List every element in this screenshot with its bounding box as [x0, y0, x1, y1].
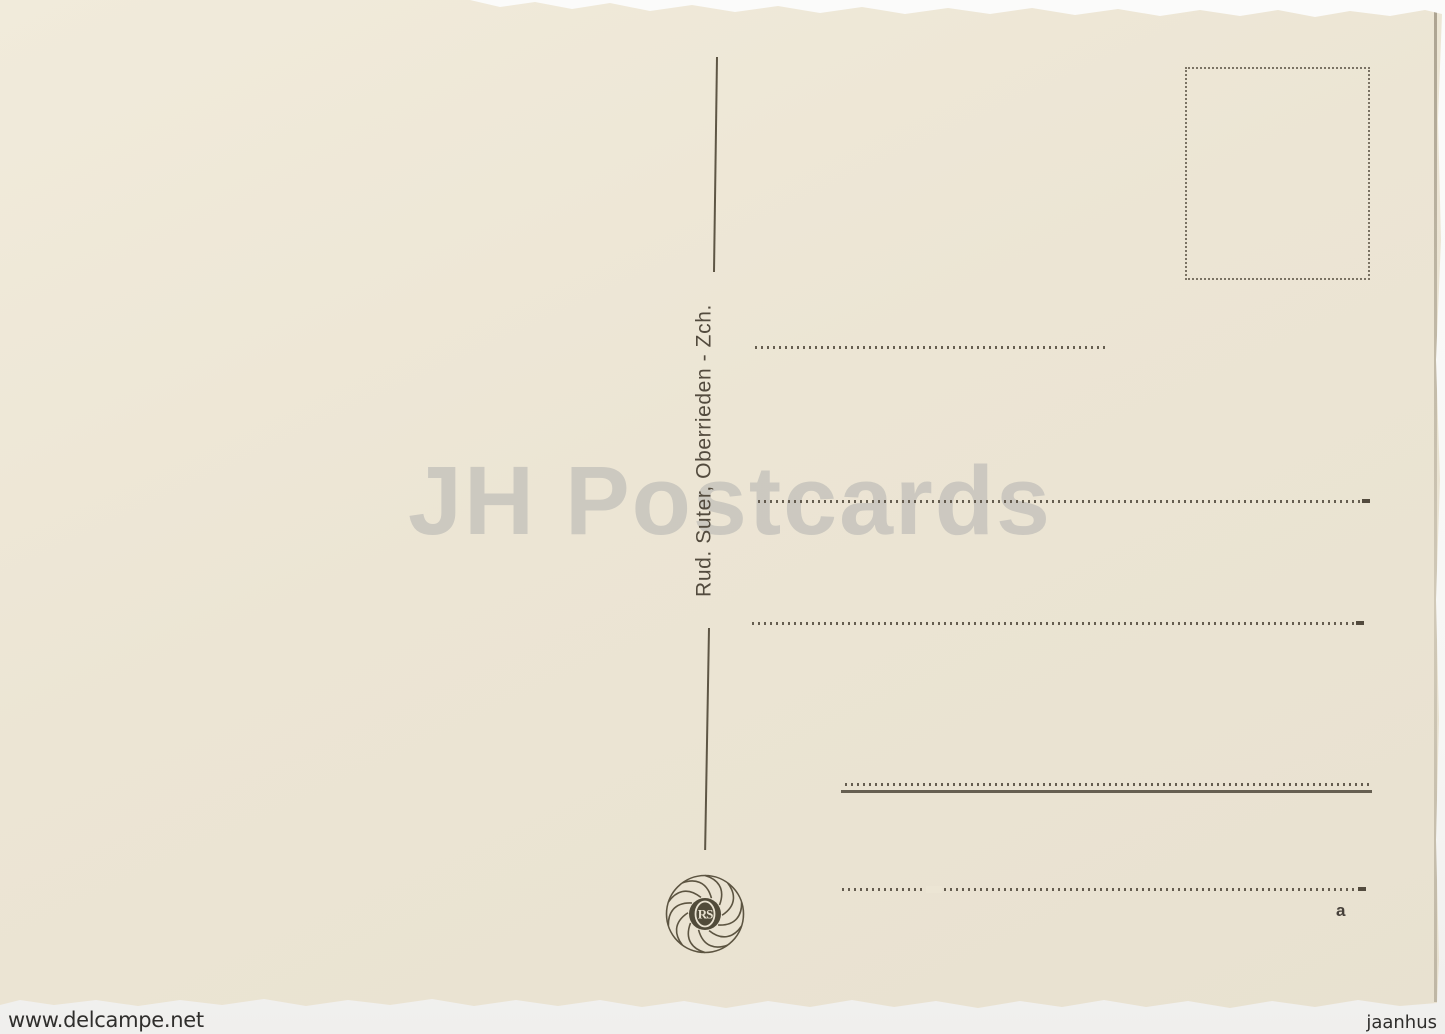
scanned-postcard-page: JH Postcards Rud. Suter, Oberrieden - Zc… — [0, 0, 1445, 1034]
center-divider-lower — [704, 628, 710, 850]
address-line-2 — [758, 500, 1367, 503]
scan-owner-watermark: jaanhus — [1366, 1012, 1437, 1033]
publisher-imprint: Rud. Suter, Oberrieden - Zch. — [693, 286, 720, 616]
scan-site-watermark: www.delcampe.net — [8, 1008, 204, 1032]
address-line-3 — [752, 622, 1362, 625]
address-line-5-gap — [926, 886, 942, 893]
address-line-4-solid — [841, 790, 1372, 793]
address-line-5 — [842, 888, 1364, 891]
postcard-back: JH Postcards Rud. Suter, Oberrieden - Zc… — [0, 0, 1445, 1034]
publisher-logo-icon: RS — [660, 869, 750, 959]
address-line-1 — [755, 346, 1108, 349]
address-line-5-end-mark — [1358, 887, 1366, 891]
stamp-box — [1185, 67, 1370, 280]
address-line-4-dotted — [845, 783, 1370, 786]
corner-mark: a — [1336, 901, 1345, 921]
logo-monogram: RS — [698, 907, 713, 922]
center-divider-upper — [713, 57, 718, 272]
card-edge-shadow — [1434, 12, 1437, 1002]
address-line-2-end-mark — [1362, 499, 1370, 503]
address-line-3-end-mark — [1356, 621, 1364, 625]
